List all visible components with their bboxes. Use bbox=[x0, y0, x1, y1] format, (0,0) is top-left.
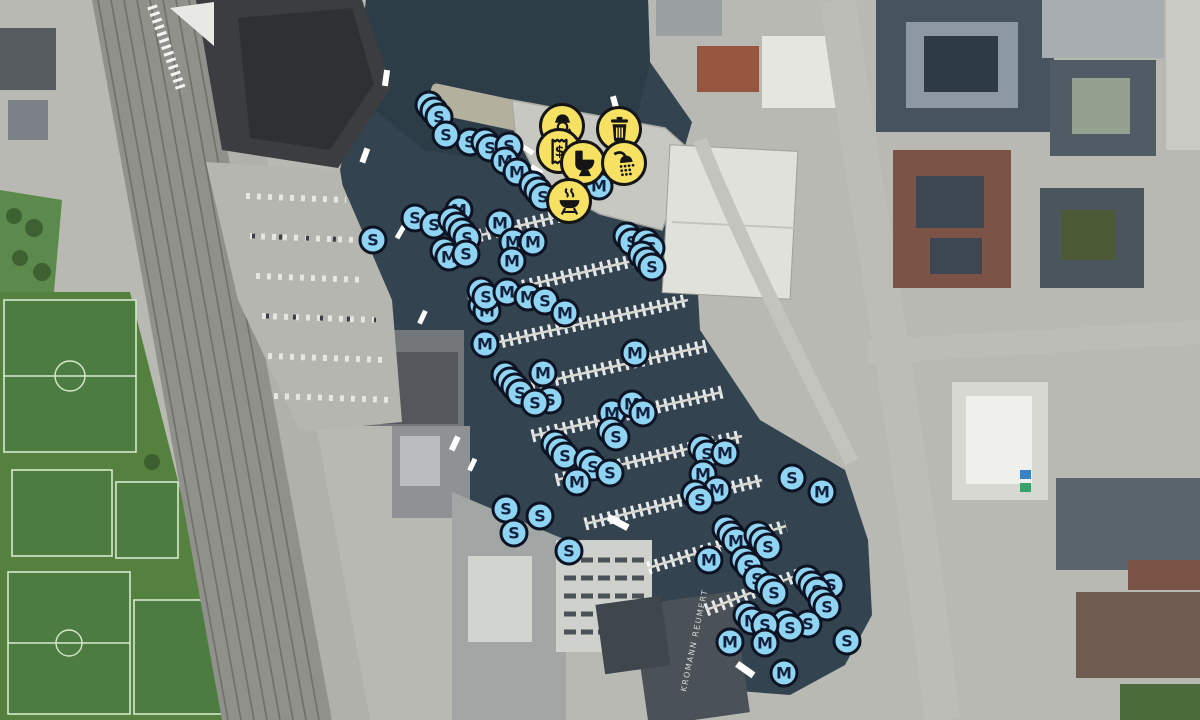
bbq-glyph bbox=[553, 185, 586, 218]
shower-glyph bbox=[608, 147, 641, 180]
map-canvas[interactable]: KROMANN REUMERT bbox=[0, 0, 1200, 720]
amenity-bbq-icon[interactable] bbox=[546, 178, 592, 224]
amenity-layer: $ bbox=[0, 0, 1200, 720]
toilet-glyph bbox=[567, 147, 600, 180]
amenity-shower-icon[interactable] bbox=[601, 140, 647, 186]
